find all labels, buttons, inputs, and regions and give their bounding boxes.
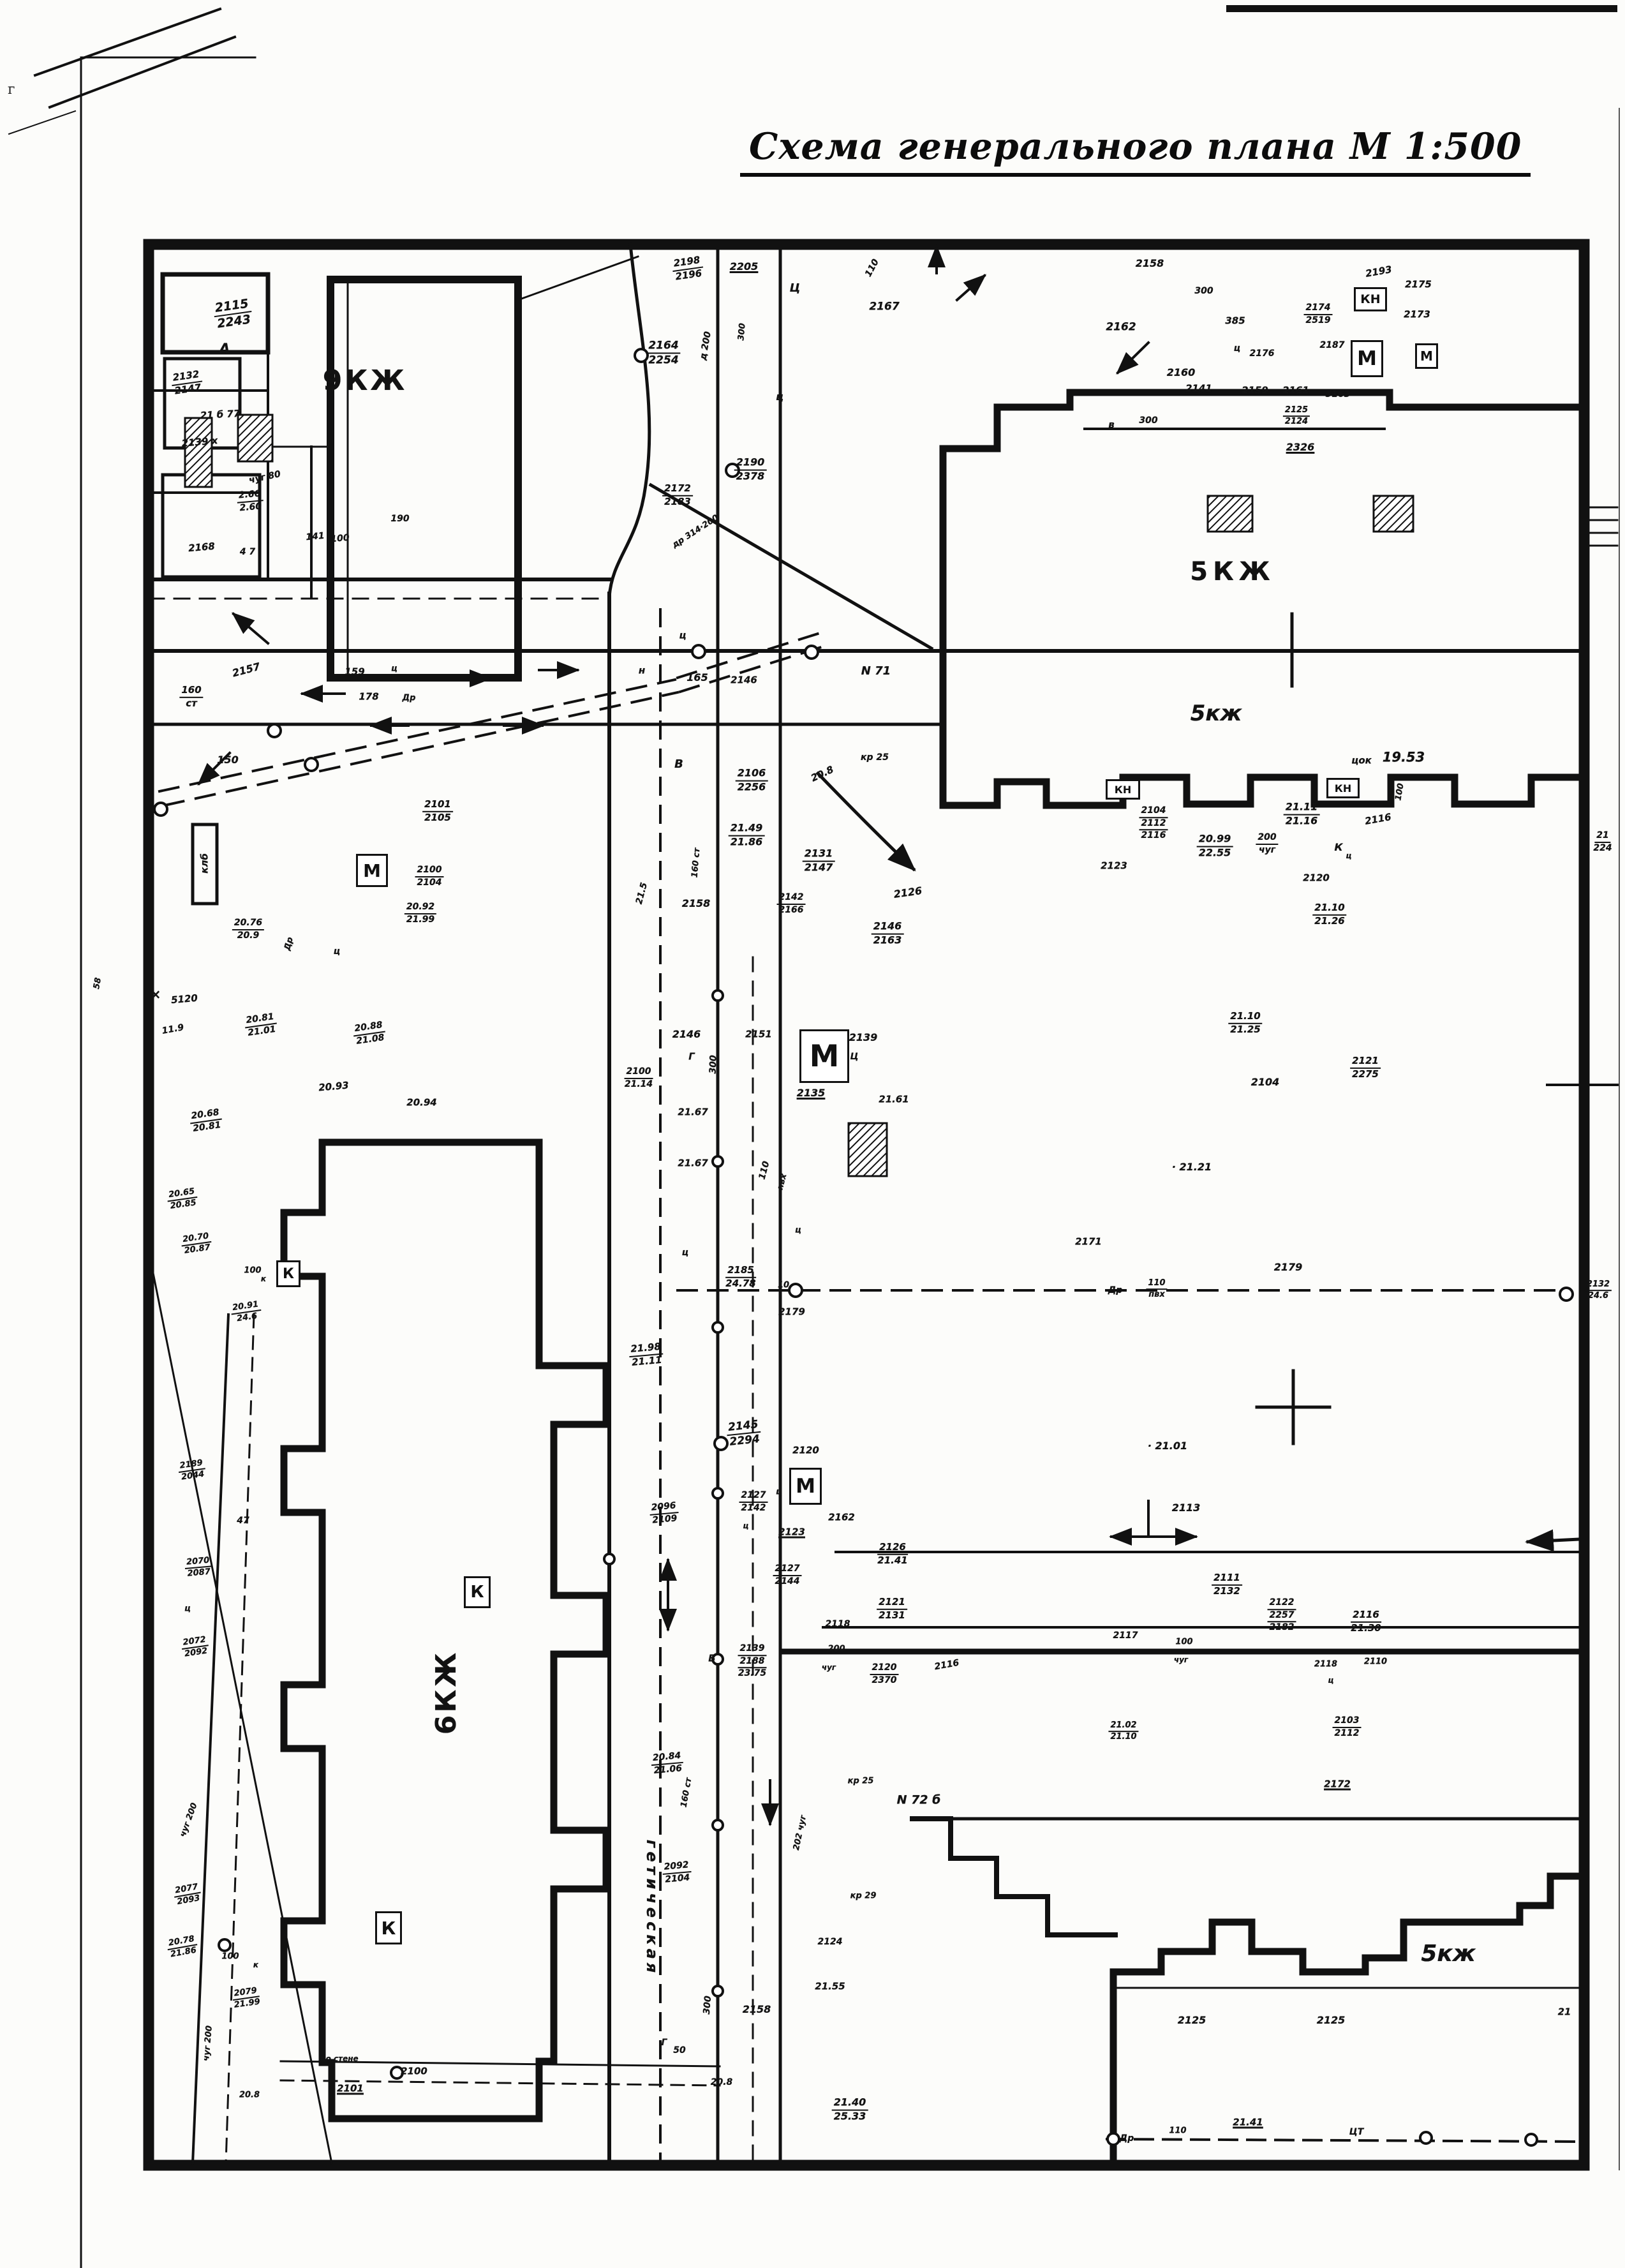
map-label: 2139 х — [181, 436, 218, 449]
map-label: 2123 — [1101, 862, 1127, 871]
map-label: 58 — [93, 977, 103, 990]
fraction-part: 2294 — [729, 1433, 761, 1449]
map-label: ц — [679, 631, 686, 641]
elevation-fraction: 218524.78 — [725, 1265, 756, 1289]
fraction-part: 21.11 — [631, 1354, 662, 1368]
map-label: клб — [200, 853, 210, 874]
map-label: 2179 — [1274, 1262, 1303, 1272]
fraction-part: 2100 — [625, 1066, 653, 1079]
fraction-part: 2106 — [736, 768, 768, 782]
elevation-fraction: 200чуг — [1256, 832, 1278, 855]
map-label: 21 б 77 — [200, 409, 240, 421]
fraction-part: 2190 — [734, 457, 767, 471]
map-label: н — [639, 666, 645, 676]
fraction-part: 22.55 — [1199, 847, 1231, 860]
map-label: 5КЖ — [1190, 559, 1275, 585]
map-label: кр 29 — [850, 1892, 877, 1900]
elevation-fraction: 21272144 — [773, 1563, 802, 1586]
fraction-part: 2132 — [1213, 1586, 1240, 1597]
map-label: 2118 — [826, 1620, 850, 1629]
map-label: В — [674, 759, 683, 770]
scanned-plan-sheet: 21152243А2132214721 б 772139 хчуг 802.66… — [0, 0, 1625, 2268]
elevation-fraction: 21322147 — [170, 369, 204, 398]
fraction-part: 2124 — [1285, 417, 1308, 427]
map-label: 20.8 — [810, 765, 835, 783]
elevation-fraction: 20.6520.85 — [166, 1186, 198, 1212]
fraction-part: 2147 — [805, 862, 833, 874]
map-label: Г — [688, 1052, 695, 1062]
map-label: 5163 — [1326, 390, 1351, 399]
fraction-part: 20.76 — [232, 918, 264, 930]
fraction-part: 2370 — [872, 1675, 897, 1686]
elevation-fraction: 20.9124.6 — [230, 1299, 262, 1325]
fraction-part: 200 — [1256, 832, 1278, 845]
elevation-fraction: 21.1021.25 — [1228, 1011, 1262, 1035]
map-label: 21.5 — [635, 882, 649, 906]
map-label: 2146 — [731, 676, 757, 685]
fraction-part: 25.33 — [834, 2111, 866, 2123]
fraction-part: 21.16 — [1286, 816, 1318, 828]
map-label: 110 — [864, 258, 880, 278]
map-label: 21.67 — [678, 1159, 708, 1168]
symbol-box-М: М — [356, 854, 388, 887]
elevation-fraction: 21452294 — [725, 1418, 762, 1449]
elevation-fraction: 210021.14 — [625, 1066, 653, 1089]
fraction-part: 2182 — [1270, 1622, 1295, 1633]
map-label: гетическая — [644, 1840, 660, 1976]
fraction-part: 2127 — [739, 1490, 768, 1503]
map-label: 5кж — [1421, 1943, 1475, 1966]
map-label: 2162 — [828, 1513, 855, 1523]
elevation-fraction: 213224.6 — [1585, 1279, 1612, 1301]
map-label: чуг 200 — [202, 2026, 214, 2062]
map-label: × — [151, 988, 161, 1001]
elevation-fraction: 20.9922.55 — [1197, 833, 1233, 860]
map-label: 2135 — [797, 1088, 826, 1098]
map-label: 10 — [778, 1281, 789, 1290]
map-label: А — [219, 343, 230, 357]
map-label: 2168 — [188, 542, 216, 554]
map-label: 2171 — [1075, 1237, 1102, 1247]
fraction-part: 110 — [1146, 1278, 1167, 1290]
elevation-fraction: 21032112 — [1333, 1715, 1362, 1738]
map-label: 2176 — [1250, 349, 1275, 358]
fraction-part: 2257 — [1268, 1610, 1296, 1623]
elevation-fraction: 21722183 — [662, 483, 693, 507]
fraction-part: 2275 — [1352, 1069, 1379, 1080]
elevation-fraction: 21272142 — [739, 1490, 768, 1513]
map-label: Г — [662, 2038, 667, 2047]
fraction-part: 2378 — [736, 471, 765, 483]
elevation-fraction: 20772093 — [172, 1882, 202, 1907]
fraction-part: 2256 — [738, 782, 766, 794]
map-label: к — [261, 1275, 266, 1283]
map-label: 2125 — [1178, 2015, 1206, 2026]
fraction-part: 160 — [179, 685, 203, 698]
elevation-fraction: 21422166 — [777, 892, 806, 915]
elevation-fraction: 21742519 — [1304, 302, 1333, 325]
map-label: 300 — [708, 1055, 718, 1074]
fraction-part: 21.25 — [1230, 1024, 1260, 1036]
symbol-box-К: К — [375, 1911, 402, 1944]
elevation-fraction: 20.8121.01 — [244, 1011, 279, 1039]
map-label: 2187 — [1320, 341, 1345, 350]
map-label: 150 — [217, 755, 238, 765]
fraction-part: 2.60 — [239, 501, 262, 513]
map-label: 21.67 — [678, 1108, 708, 1117]
fraction-part: 2146 — [872, 921, 904, 935]
fraction-part: 21.49 — [729, 823, 765, 837]
fraction-part: 2112 — [1335, 1728, 1360, 1739]
fraction-part: 20.92 — [404, 902, 436, 914]
map-label: 2118 — [1314, 1660, 1337, 1669]
elevation-fraction: 20.8821.08 — [352, 1020, 387, 1047]
map-label: Др — [403, 694, 416, 703]
fraction-part: 2144 — [775, 1576, 800, 1587]
map-label: 100 — [330, 533, 350, 544]
map-label: 11.9 — [161, 1023, 184, 1036]
fraction-part: 2116 — [1351, 1609, 1381, 1623]
fraction-part: ст — [186, 698, 197, 710]
elevation-fraction: 212621.41 — [877, 1542, 908, 1566]
map-label: 20.93 — [318, 1080, 350, 1093]
elevation-fraction: 21.1121.16 — [1284, 802, 1320, 828]
map-label: 2158 — [682, 899, 711, 909]
elevation-fraction: 21982196 — [671, 255, 705, 283]
elevation-fraction: 21152243 — [212, 296, 254, 332]
fraction-part: 2120 — [870, 1662, 899, 1675]
fraction-part: 2101 — [422, 799, 453, 812]
fraction-part: 21.10 — [1312, 902, 1346, 916]
map-label: 2101 — [337, 2084, 364, 2094]
map-label: 2158 — [743, 2004, 771, 2015]
elevation-fraction: 211621.30 — [1351, 1609, 1381, 1634]
map-label: 5кж — [1191, 703, 1242, 724]
elevation-fraction: 20722092 — [181, 1634, 210, 1659]
map-label: 2175 — [1405, 280, 1432, 290]
symbol-box-К: К — [464, 1576, 491, 1608]
map-label: · 21.01 — [1148, 1441, 1187, 1451]
fraction-part: 2104 — [665, 1872, 690, 1885]
fraction-part: 2127 — [773, 1563, 802, 1576]
map-label: 2104 — [1251, 1077, 1280, 1087]
map-label: 159 — [345, 668, 364, 677]
symbol-box-КН: КН — [1354, 287, 1387, 311]
map-label: 165 — [686, 673, 708, 683]
elevation-fraction: 20.6820.81 — [189, 1107, 224, 1135]
map-label: чуг — [1174, 1656, 1188, 1664]
elevation-fraction: 21212275 — [1350, 1056, 1381, 1080]
fraction-part: 2254 — [648, 354, 678, 367]
map-label: 2205 — [730, 262, 759, 272]
fraction-part: 24.6 — [236, 1311, 258, 1324]
elevation-fraction: 20.8421.06 — [650, 1750, 684, 1776]
map-label: д 200 — [699, 331, 713, 361]
map-label: ц — [1328, 1676, 1334, 1684]
map-label: 21.61 — [879, 1095, 909, 1105]
map-label: В — [708, 1654, 715, 1664]
map-label: 2193 — [1365, 265, 1393, 279]
symbol-box-К: К — [276, 1260, 301, 1287]
map-label: 21.41 — [1233, 2118, 1263, 2128]
elevation-fraction: 21892044 — [177, 1458, 207, 1482]
map-label: 2179 — [778, 1308, 805, 1317]
fraction-part: 2087 — [187, 1567, 211, 1579]
map-label: ц — [776, 392, 783, 402]
fraction-part: пвх — [1148, 1290, 1165, 1300]
map-label: ц — [743, 1522, 749, 1530]
fraction-part: 2166 — [779, 905, 804, 916]
map-label: ц — [682, 1248, 688, 1257]
fraction-part: 21.30 — [1351, 1623, 1381, 1634]
fraction-part: 21.41 — [877, 1555, 907, 1567]
map-label: 385 — [1225, 317, 1245, 326]
map-label: 2160 — [1167, 368, 1196, 378]
map-label: 2158 — [1136, 258, 1164, 269]
elevation-fraction: 20.7620.9 — [232, 918, 264, 941]
elevation-fraction: 20922104 — [662, 1860, 692, 1885]
fraction-part: 2183 — [664, 496, 691, 508]
map-label: 100 — [1394, 783, 1406, 802]
fraction-part: 2112 — [1139, 818, 1168, 831]
map-label: 200 — [827, 1645, 845, 1653]
map-label: 2100 — [401, 2067, 427, 2077]
map-label: 2157 — [231, 662, 261, 679]
fraction-part: 21 — [1594, 830, 1610, 843]
map-label: N 71 — [861, 666, 891, 677]
fraction-part: 224 — [1593, 843, 1612, 854]
fraction-part: 20.99 — [1197, 833, 1233, 847]
map-label: 20.94 — [406, 1098, 436, 1108]
map-label: Др — [1120, 2134, 1134, 2143]
symbol-box-КН: КН — [1326, 778, 1360, 798]
map-label: ц — [334, 947, 340, 956]
fraction-part: 24.78 — [725, 1278, 755, 1290]
fraction-part: 21.40 — [832, 2097, 868, 2111]
map-label: 110 — [757, 1160, 771, 1181]
map-label: 21.55 — [815, 1982, 845, 1992]
elevation-fraction: 21.4921.86 — [729, 823, 765, 849]
map-label: 110 — [1169, 2127, 1186, 2135]
elevation-fraction: 21.1021.26 — [1312, 902, 1346, 927]
elevation-fraction: 20.9221.99 — [404, 902, 436, 925]
fraction-part: 2111 — [1212, 1572, 1242, 1586]
fraction-part: 2104 — [1139, 805, 1168, 818]
map-label: Ц — [790, 283, 801, 294]
map-label: 5120 — [171, 994, 198, 1006]
map-label: 2110 — [1364, 1658, 1387, 1666]
page-title: Схема генерального плана М 1:500 — [740, 125, 1531, 177]
fraction-part: 2164 — [646, 339, 680, 354]
fraction-part: 2116 — [1141, 830, 1166, 841]
map-label: 19.53 — [1383, 751, 1425, 765]
corner-mark: г — [8, 82, 15, 98]
fraction-part: 2121 — [1350, 1056, 1381, 1069]
elevation-fraction: 20.7821.86 — [166, 1934, 199, 1960]
fraction-part: 2172 — [662, 483, 693, 496]
map-label: 100 — [221, 1953, 239, 1961]
fraction-part: 2174 — [1304, 302, 1333, 315]
elevation-fraction: 21462163 — [872, 921, 904, 947]
map-label: к — [253, 1961, 258, 1969]
symbol-box-М: М — [1415, 343, 1438, 369]
elevation-fraction: 21112132 — [1212, 1572, 1242, 1597]
map-label: по стене — [320, 2055, 358, 2063]
fraction-part: 2121 — [877, 1597, 907, 1610]
elevation-fraction: 21012105 — [422, 799, 453, 823]
map-label: 2113 — [1172, 1503, 1201, 1513]
map-label: 2141 — [1185, 384, 1212, 394]
map-label: 2116 — [934, 1659, 960, 1672]
map-label: 21 — [1558, 2008, 1571, 2017]
map-label: 2126 — [893, 886, 923, 900]
elevation-triple: 212222572182 — [1268, 1597, 1296, 1633]
fraction-part: 2139 — [738, 1643, 767, 1656]
fraction-part: 21.02 — [1108, 1720, 1138, 1732]
elevation-fraction: 21252124 — [1283, 405, 1310, 427]
fraction-part: 2519 — [1306, 315, 1331, 326]
map-label: 2172 — [1324, 1780, 1351, 1789]
map-label: ц — [795, 1227, 801, 1235]
map-label: · 21.21 — [1172, 1162, 1212, 1172]
map-label: в — [1108, 421, 1115, 430]
elevation-fraction: 21224 — [1593, 830, 1612, 853]
map-label: чуг 80 — [248, 470, 281, 485]
map-label: чуг 200 — [179, 1802, 198, 1839]
map-label: 100 — [244, 1267, 261, 1275]
fraction-part: 21.06 — [653, 1763, 683, 1776]
map-label: 2146 — [672, 1029, 701, 1040]
map-label: ц — [1346, 852, 1352, 860]
fraction-part: 2122 — [1268, 1597, 1296, 1610]
fraction-part: 2142 — [777, 892, 806, 905]
map-label: 300 — [702, 1996, 713, 2015]
map-label: 2120 — [1303, 874, 1330, 883]
map-label: ц — [391, 665, 397, 673]
map-label: 160 ст — [680, 1777, 694, 1808]
map-label: чуг — [822, 1664, 836, 1671]
map-label: 2162 — [1106, 322, 1136, 333]
map-label: цок — [1351, 756, 1372, 766]
map-label: 202 чуг — [792, 1814, 808, 1851]
elevation-fraction: 110пвх — [1146, 1278, 1167, 1300]
elevation-fraction: 20962109 — [649, 1500, 679, 1526]
map-label: 2117 — [1113, 1631, 1138, 1640]
elevation-fraction: 21202370 — [870, 1662, 899, 1685]
map-label: 2125 — [1317, 2015, 1346, 2026]
elevation-fraction: 21902378 — [734, 457, 767, 483]
fraction-part: 2126 — [877, 1542, 908, 1555]
fraction-part: 23.75 — [738, 1668, 766, 1679]
map-label: 2123 — [778, 1528, 805, 1537]
elevation-fraction: 21.9821.11 — [628, 1341, 665, 1369]
elevation-fraction: 21312147 — [803, 848, 835, 874]
map-label: 20.8 — [711, 2078, 733, 2087]
fraction-part: 21.10 — [1228, 1011, 1262, 1024]
map-label: 2167 — [869, 302, 899, 313]
symbol-box-М: М — [789, 1468, 822, 1505]
map-label: 300 — [1194, 287, 1213, 295]
elevation-fraction: 21002104 — [415, 865, 444, 888]
map-label: 2161 — [1282, 386, 1309, 396]
symbol-box-КН: КН — [1106, 779, 1140, 800]
elevation-fraction: 21.0221.10 — [1108, 1720, 1138, 1742]
map-label: К — [1334, 842, 1342, 853]
fraction-part: 2188 — [738, 1656, 767, 1669]
map-label: 47 — [237, 1516, 249, 1525]
map-labels-layer: 21152243А2132214721 б 772139 хчуг 802.66… — [0, 0, 1625, 2268]
fraction-part: 21.86 — [731, 837, 763, 849]
map-label: 2159 — [1242, 386, 1268, 396]
fraction-part: 20.9 — [237, 930, 260, 941]
map-label: 9КЖ — [323, 367, 407, 395]
map-label: 6КЖ — [433, 1650, 461, 1735]
map-label: 160 ст — [690, 847, 701, 878]
map-label: 2173 — [1404, 310, 1430, 320]
fraction-part: 21.11 — [1284, 802, 1320, 816]
map-label: ц — [776, 1488, 782, 1496]
map-label: др 314·200 — [671, 514, 720, 549]
fraction-part: 21.14 — [625, 1079, 653, 1090]
map-label: ЦТ — [1349, 2128, 1364, 2137]
fraction-part: 2196 — [675, 268, 703, 283]
map-label: 300 — [1139, 416, 1157, 425]
map-label: 141 — [306, 532, 325, 542]
fraction-part: 24.6 — [1588, 1292, 1608, 1301]
fraction-part: 21.26 — [1314, 916, 1344, 927]
elevation-fraction: 20702087 — [184, 1555, 213, 1579]
elevation-fraction: 21.4025.33 — [832, 2097, 868, 2123]
map-label: 2326 — [1286, 442, 1315, 452]
elevation-fraction: 21642254 — [646, 339, 680, 366]
elevation-fraction: 2.662.60 — [236, 488, 264, 513]
elevation-fraction: 21062256 — [736, 768, 768, 794]
fraction-part: 2131 — [879, 1610, 905, 1622]
fraction-part: 2147 — [174, 382, 202, 397]
map-label: Ц — [850, 1052, 859, 1061]
elevation-fraction: 21212131 — [877, 1597, 907, 1621]
map-label: 2124 — [818, 1937, 843, 1946]
fraction-part: 21.99 — [406, 914, 434, 925]
map-label: пвх — [776, 1173, 788, 1191]
fraction-part: 2103 — [1333, 1715, 1362, 1728]
elevation-fraction: 20.7020.87 — [180, 1231, 212, 1257]
map-label: 2151 — [745, 1030, 772, 1040]
fraction-part: 2132 — [1585, 1279, 1612, 1291]
fraction-part: 2100 — [415, 865, 444, 877]
map-label: 100 — [1175, 1638, 1192, 1646]
map-label: 2139 — [849, 1033, 878, 1043]
map-label: кр 25 — [861, 753, 889, 762]
map-label: 2120 — [792, 1446, 819, 1456]
map-label: 178 — [359, 692, 378, 702]
map-label: 4 7 — [240, 548, 255, 556]
fraction-part: 2104 — [417, 877, 442, 888]
map-label: ц — [184, 1605, 191, 1613]
map-label: 50 — [673, 2046, 685, 2055]
map-label: 300 — [737, 323, 746, 341]
map-label: 2116 — [1364, 812, 1392, 826]
map-label: N 72 б — [897, 1794, 941, 1807]
map-label: ц — [1234, 344, 1240, 353]
fraction-part: 2109 — [652, 1513, 678, 1526]
fraction-part: 2142 — [741, 1503, 766, 1514]
elevation-fraction: 207921.99 — [232, 1985, 261, 2010]
fraction-part: 2185 — [725, 1265, 756, 1278]
fraction-part: 21.10 — [1110, 1733, 1136, 1742]
map-label: Др — [283, 936, 295, 951]
map-label: Др — [1108, 1286, 1123, 1295]
